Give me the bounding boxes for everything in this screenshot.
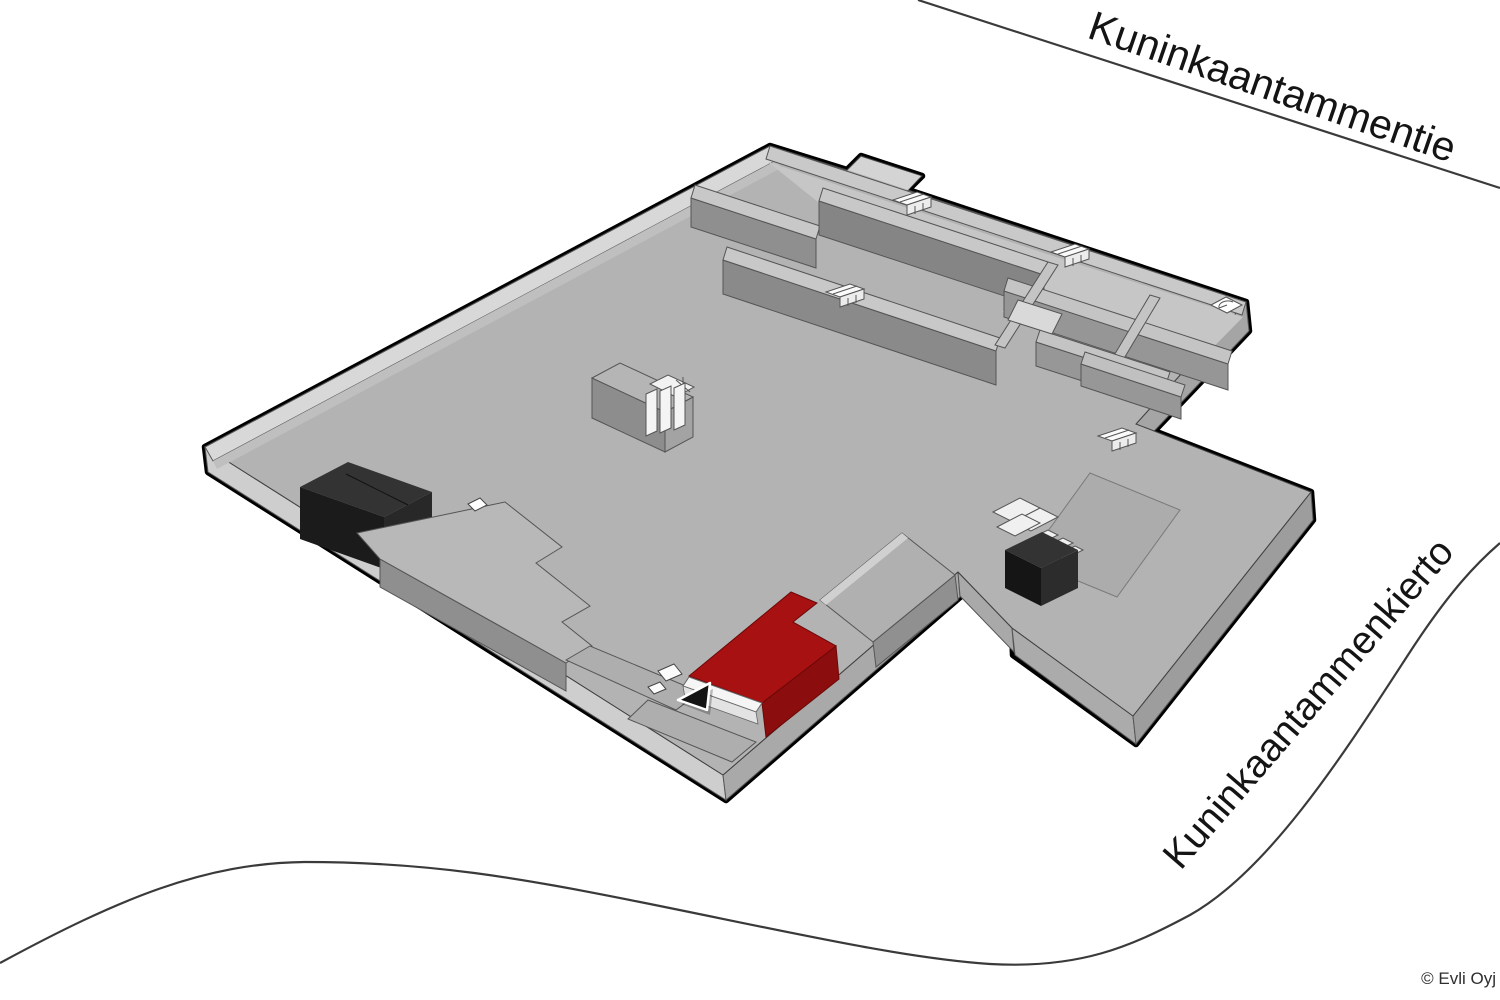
copyright-text: © Evli Oyj (1421, 969, 1496, 988)
street-label-top: Kuninkaantammentie (1083, 2, 1462, 171)
stairs-icon (660, 386, 671, 433)
stairs-icon (646, 389, 657, 436)
stairs-icon (674, 383, 685, 430)
floor-map-canvas: Kuninkaantammentie Kuninkaantammenkierto (0, 0, 1500, 1000)
road-top-line (918, 0, 1500, 188)
floor-map-page: Kuninkaantammentie Kuninkaantammenkierto (0, 0, 1500, 1000)
building (205, 146, 1313, 800)
